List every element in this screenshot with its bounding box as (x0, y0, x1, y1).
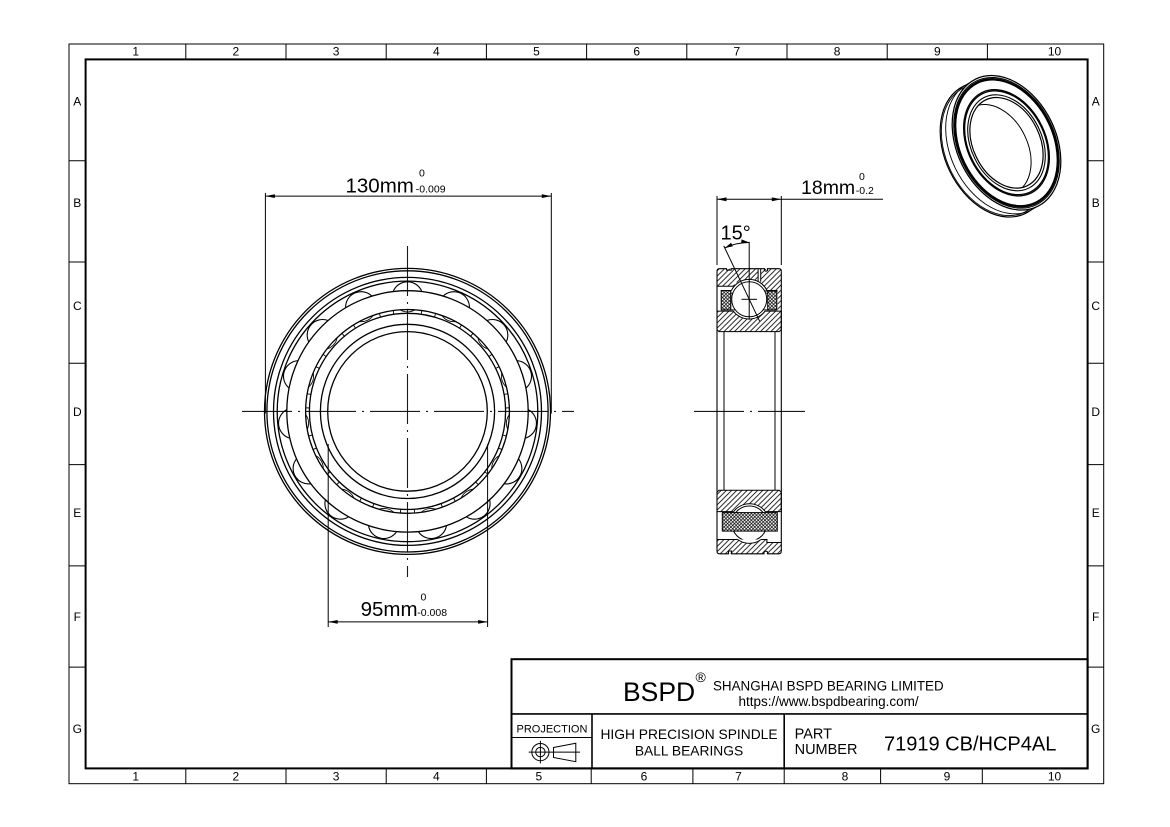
svg-text:9: 9 (944, 770, 951, 784)
svg-text:D: D (73, 405, 82, 419)
svg-text:C: C (1091, 299, 1100, 313)
svg-text:NUMBER: NUMBER (795, 742, 858, 758)
svg-text:0: 0 (421, 592, 427, 604)
svg-text:A: A (73, 95, 81, 109)
svg-text:6: 6 (641, 770, 648, 784)
svg-text:15°: 15° (721, 223, 751, 245)
svg-text:F: F (1092, 610, 1099, 624)
svg-text:6: 6 (633, 45, 640, 59)
svg-text:E: E (73, 506, 81, 520)
svg-text:3: 3 (333, 45, 340, 59)
svg-text:B: B (1092, 196, 1100, 210)
svg-text:5: 5 (535, 770, 542, 784)
svg-text:-0.008: -0.008 (417, 607, 447, 619)
svg-text:PROJECTION: PROJECTION (517, 723, 588, 735)
svg-text:71919 CB/HCP4AL: 71919 CB/HCP4AL (884, 734, 1056, 756)
svg-text:5: 5 (533, 45, 540, 59)
svg-text:18mm: 18mm (801, 177, 855, 199)
svg-text:-0.2: -0.2 (856, 185, 874, 197)
svg-text:-0.009: -0.009 (416, 183, 446, 195)
svg-text:7: 7 (734, 45, 741, 59)
svg-text:E: E (1092, 506, 1100, 520)
svg-text:G: G (73, 722, 82, 736)
svg-text:HIGH PRECISION SPINDLE: HIGH PRECISION SPINDLE (600, 727, 777, 742)
svg-text:https://www.bspdbearing.com/: https://www.bspdbearing.com/ (739, 694, 919, 709)
svg-text:130mm: 130mm (346, 174, 414, 197)
svg-text:SHANGHAI BSPD BEARING LIMITED: SHANGHAI BSPD BEARING LIMITED (713, 679, 944, 694)
svg-text:D: D (1091, 405, 1100, 419)
svg-text:8: 8 (834, 45, 841, 59)
svg-text:3: 3 (333, 770, 340, 784)
svg-text:B: B (73, 196, 81, 210)
svg-text:7: 7 (735, 770, 742, 784)
svg-text:®: ® (696, 669, 707, 685)
svg-text:4: 4 (433, 770, 440, 784)
svg-text:95mm: 95mm (361, 598, 418, 621)
svg-text:BSPD: BSPD (623, 677, 695, 707)
svg-text:10: 10 (1048, 45, 1062, 59)
svg-text:PART: PART (795, 727, 832, 743)
svg-text:1: 1 (132, 45, 139, 59)
svg-text:0: 0 (859, 171, 865, 183)
svg-text:BALL BEARINGS: BALL BEARINGS (635, 744, 743, 759)
svg-text:2: 2 (233, 45, 240, 59)
svg-text:G: G (1091, 722, 1100, 736)
svg-text:A: A (1092, 95, 1100, 109)
svg-text:8: 8 (842, 770, 849, 784)
svg-text:C: C (73, 299, 82, 313)
svg-text:0: 0 (419, 168, 425, 180)
svg-text:F: F (74, 610, 81, 624)
svg-text:4: 4 (433, 45, 440, 59)
svg-text:2: 2 (233, 770, 240, 784)
svg-text:9: 9 (934, 45, 941, 59)
svg-text:1: 1 (132, 770, 139, 784)
svg-text:10: 10 (1048, 770, 1062, 784)
